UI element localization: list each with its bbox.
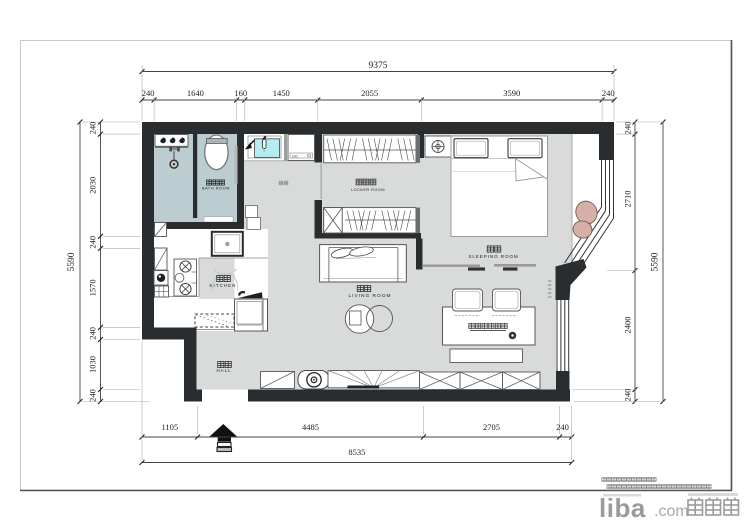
svg-text:2710: 2710 — [623, 191, 633, 208]
svg-text:8535: 8535 — [348, 447, 365, 457]
svg-text:240: 240 — [88, 122, 98, 135]
svg-text:240: 240 — [556, 422, 569, 432]
svg-text:160: 160 — [234, 88, 247, 98]
svg-text:KITCHEN: KITCHEN — [210, 283, 237, 288]
svg-text:1570: 1570 — [88, 279, 98, 296]
svg-text:2705: 2705 — [483, 422, 500, 432]
svg-text:3590: 3590 — [503, 88, 520, 98]
svg-text:240: 240 — [623, 122, 633, 135]
svg-text:240: 240 — [142, 88, 155, 98]
svg-text:2400: 2400 — [623, 317, 633, 334]
svg-text:DO: DO — [292, 155, 298, 159]
svg-text:5590: 5590 — [651, 252, 661, 271]
svg-text:BATH ROOM: BATH ROOM — [202, 187, 230, 191]
svg-text:9375: 9375 — [369, 61, 388, 71]
svg-text:240: 240 — [88, 327, 98, 340]
svg-text:240: 240 — [88, 236, 98, 249]
svg-text:240: 240 — [88, 389, 98, 402]
svg-text:liba: liba — [599, 493, 646, 523]
svg-text:HALL: HALL — [217, 368, 232, 373]
svg-text:LOCKER ROOM: LOCKER ROOM — [351, 188, 385, 192]
svg-text:1640: 1640 — [187, 88, 204, 98]
svg-text:.com: .com — [654, 503, 689, 520]
svg-text:240: 240 — [602, 88, 615, 98]
svg-text:1030: 1030 — [88, 356, 98, 373]
svg-text:LIVING ROOM: LIVING ROOM — [349, 293, 392, 299]
svg-text:240: 240 — [623, 389, 633, 402]
svg-text:2055: 2055 — [361, 88, 378, 98]
svg-text:5590: 5590 — [67, 252, 77, 271]
svg-text:4485: 4485 — [302, 422, 319, 432]
svg-text:2030: 2030 — [88, 177, 98, 194]
svg-text:1450: 1450 — [273, 88, 290, 98]
svg-text:SLEEPING ROOM: SLEEPING ROOM — [468, 254, 518, 259]
svg-text:1105: 1105 — [161, 422, 178, 432]
